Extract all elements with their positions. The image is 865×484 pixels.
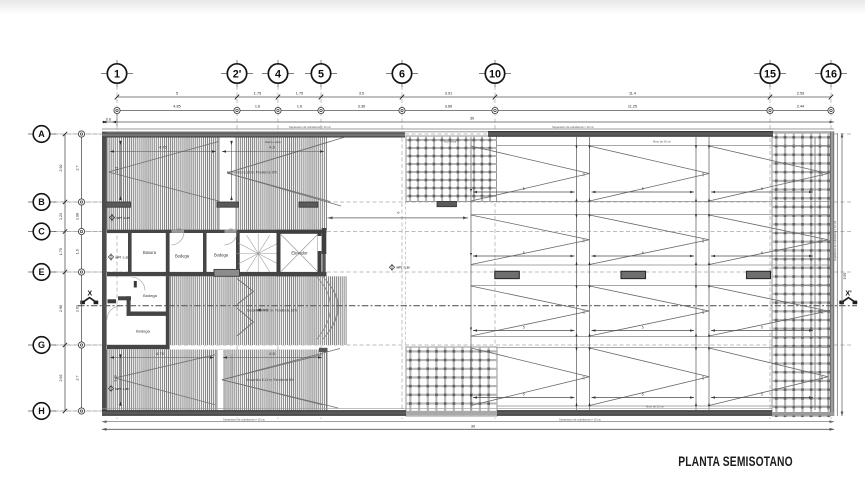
svg-text:2': 2' [233, 68, 242, 80]
svg-text:5: 5 [642, 393, 644, 397]
svg-text:5: 5 [523, 326, 525, 330]
svg-text:4.5: 4.5 [269, 351, 275, 356]
svg-text:1.08: 1.08 [76, 213, 80, 220]
svg-text:9.55: 9.55 [843, 273, 847, 280]
svg-text:1.6: 1.6 [297, 105, 302, 109]
svg-text:4.75: 4.75 [156, 351, 165, 356]
svg-text:5: 5 [761, 393, 763, 397]
svg-text:2.43: 2.43 [115, 167, 119, 173]
svg-text:PLANTA SEMISOTANO: PLANTA SEMISOTANO [678, 453, 793, 469]
svg-text:4: 4 [275, 68, 281, 80]
svg-text:5: 5 [523, 251, 525, 255]
svg-text:2.5: 2.5 [701, 238, 705, 242]
svg-text:2.7: 2.7 [76, 376, 80, 381]
svg-text:5: 5 [523, 393, 525, 397]
svg-text:Muro de 20 cm: Muro de 20 cm [646, 405, 665, 409]
svg-text:Bodega: Bodega [175, 253, 190, 258]
svg-text:Separacion de colindancia = 10: Separacion de colindancia = 10 cm [833, 221, 837, 261]
svg-text:1.70: 1.70 [59, 248, 63, 255]
svg-text:16: 16 [825, 68, 837, 80]
svg-text:5: 5 [176, 92, 178, 96]
svg-text:2.5: 2.5 [582, 310, 586, 314]
svg-text:Separacion de colindancia = 10: Separacion de colindancia = 10 cm [552, 125, 595, 129]
svg-text:1.6: 1.6 [76, 249, 80, 254]
svg-text:2.5: 2.5 [582, 238, 586, 242]
svg-text:5: 5 [523, 187, 525, 191]
svg-text:B: B [38, 197, 45, 207]
svg-text:3.5: 3.5 [359, 92, 364, 96]
svg-text:Basura: Basura [143, 250, 157, 255]
svg-text:2.5: 2.5 [701, 310, 705, 314]
svg-text:5: 5 [761, 251, 763, 255]
svg-text:1.6: 1.6 [255, 105, 260, 109]
svg-text:A: A [38, 129, 45, 139]
svg-text:6: 6 [399, 68, 405, 80]
svg-text:4.85: 4.85 [173, 105, 180, 109]
svg-text:X: X [87, 291, 92, 298]
svg-text:1.75: 1.75 [254, 92, 261, 96]
svg-text:15: 15 [764, 68, 776, 80]
svg-text:2.7: 2.7 [76, 166, 80, 171]
svg-text:1: 1 [114, 68, 120, 80]
svg-text:Bodega: Bodega [136, 328, 151, 333]
svg-text:4.5: 4.5 [269, 145, 275, 150]
svg-text:Separacion de colindancia = 10: Separacion de colindancia = 10 cm [223, 417, 266, 421]
svg-text:OP: OP [229, 228, 233, 232]
svg-text:1.75: 1.75 [296, 92, 303, 96]
svg-text:E: E [38, 267, 44, 277]
svg-text:30: 30 [471, 424, 475, 428]
svg-text:Bodega: Bodega [143, 293, 158, 298]
svg-text:2.5: 2.5 [820, 238, 824, 242]
svg-text:6: 6 [396, 211, 400, 213]
svg-text:G: G [38, 340, 45, 350]
svg-text:NPT -1.35: NPT -1.35 [397, 266, 411, 270]
svg-text:NPT -1.35: NPT -1.35 [116, 255, 130, 259]
svg-text:NPT -1.35: NPT -1.35 [116, 387, 130, 391]
svg-text:NPT -1.35: NPT -1.35 [117, 216, 131, 220]
svg-text:3.91: 3.91 [445, 92, 452, 96]
svg-text:Desarrollo 8.15 m. Pendiente 8: Desarrollo 8.15 m. Pendiente 8% [246, 378, 294, 382]
svg-text:5: 5 [761, 187, 763, 191]
svg-text:5: 5 [318, 68, 324, 80]
svg-text:10: 10 [489, 68, 501, 80]
svg-text:Rampa autos: Rampa autos [265, 140, 281, 144]
svg-text:2.43: 2.43 [114, 375, 118, 381]
svg-text:Elevador: Elevador [291, 251, 308, 256]
svg-text:4.75: 4.75 [159, 145, 168, 150]
svg-text:2.59: 2.59 [797, 92, 804, 96]
svg-text:3.36: 3.36 [358, 105, 365, 109]
svg-text:Separacion de colindancia = 10: Separacion de colindancia = 10 cm [289, 125, 332, 129]
svg-text:2.5: 2.5 [701, 172, 705, 176]
svg-text:5: 5 [642, 326, 644, 330]
svg-text:2.5: 2.5 [820, 172, 824, 176]
svg-text:2.92: 2.92 [59, 165, 63, 172]
svg-text:5: 5 [642, 251, 644, 255]
svg-text:X': X' [845, 291, 852, 298]
svg-text:Bodega: Bodega [214, 252, 229, 257]
svg-text:2.5: 2.5 [582, 172, 586, 176]
svg-text:Desarrollo 8.15 m. Pendiente 8: Desarrollo 8.15 m. Pendiente 8% [227, 171, 277, 175]
svg-text:11.4: 11.4 [629, 92, 636, 96]
svg-text:5: 5 [761, 326, 763, 330]
svg-text:2.5: 2.5 [701, 375, 705, 379]
svg-text:2.63: 2.63 [59, 375, 63, 382]
svg-text:2.63: 2.63 [76, 305, 80, 312]
svg-text:C: C [38, 227, 45, 237]
svg-text:30: 30 [470, 117, 474, 121]
svg-text:OP: OP [177, 228, 181, 232]
svg-text:2.5: 2.5 [820, 375, 824, 379]
svg-text:2.44: 2.44 [797, 105, 804, 109]
svg-text:1.23: 1.23 [59, 213, 63, 220]
svg-text:Separacion de colindancia = 10: Separacion de colindancia = 10 cm [559, 417, 602, 421]
svg-text:Desarrollo 9.00 m. Pendiente 1: Desarrollo 9.00 m. Pendiente 16% [247, 309, 297, 313]
svg-text:3.66: 3.66 [445, 105, 452, 109]
svg-text:2.96: 2.96 [59, 305, 63, 312]
svg-text:5: 5 [642, 187, 644, 191]
svg-text:H: H [38, 406, 45, 416]
svg-text:0.6: 0.6 [106, 118, 111, 122]
svg-text:2.5: 2.5 [820, 310, 824, 314]
svg-text:Rep. grava: Rep. grava [444, 141, 457, 144]
svg-text:11.25: 11.25 [628, 105, 637, 109]
svg-text:2.5: 2.5 [582, 375, 586, 379]
svg-text:Muro de 20 cm: Muro de 20 cm [653, 140, 672, 144]
